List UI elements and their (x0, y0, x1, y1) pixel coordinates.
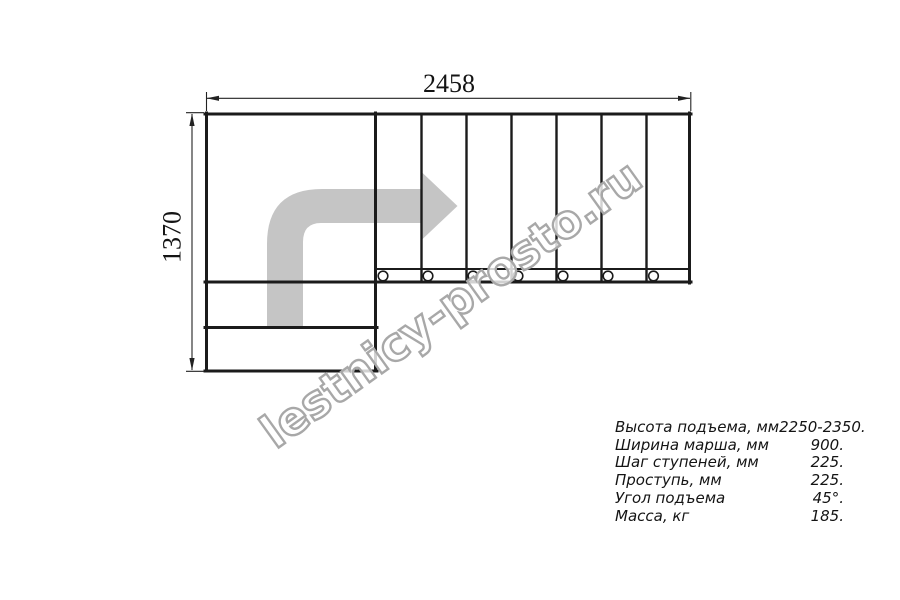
fastener-hole (603, 271, 613, 281)
width-dimension-label: 2458 (423, 69, 475, 98)
stair-plan-page: 2458 1370 lestnicy-prosto.ru Высота подъ… (0, 0, 900, 600)
dimension-arrowhead (189, 358, 194, 371)
spec-label: Шаг ступеней, мм (615, 454, 759, 472)
spec-row: Шаг ступеней, мм 225. (615, 454, 844, 472)
spec-value: 900. (811, 437, 844, 455)
spec-value: 225. (811, 472, 844, 490)
spec-row: Проступь, мм 225. (615, 472, 844, 490)
spec-value: 2250-2350. (779, 419, 866, 437)
spec-row: Масса, кг 185. (615, 508, 844, 526)
dimension-arrowhead (207, 96, 220, 101)
fastener-hole (649, 271, 659, 281)
spec-label: Ширина марша, мм (615, 437, 769, 455)
height-dimension-label: 1370 (158, 211, 187, 263)
spec-row: Высота подъема, мм 2250-2350. (615, 419, 844, 437)
spec-value: 45°. (813, 490, 844, 508)
spec-row: Угол подъема 45°. (615, 490, 844, 508)
fastener-hole (378, 271, 388, 281)
spec-label: Высота подъема, мм (615, 419, 779, 437)
dimension-arrowhead (678, 96, 691, 101)
dimension-arrowhead (189, 114, 194, 127)
spec-table: Высота подъема, мм 2250-2350. Ширина мар… (615, 419, 844, 525)
spec-label: Проступь, мм (615, 472, 722, 490)
spec-label: Угол подъема (615, 490, 725, 508)
spec-value: 185. (811, 508, 844, 526)
dimension-top: 2458 (207, 69, 691, 111)
spec-label: Масса, кг (615, 508, 689, 526)
spec-value: 225. (811, 454, 844, 472)
dimension-left: 1370 (158, 113, 205, 372)
spec-row: Ширина марша, мм 900. (615, 437, 844, 455)
fastener-hole (423, 271, 433, 281)
fastener-hole (558, 271, 568, 281)
